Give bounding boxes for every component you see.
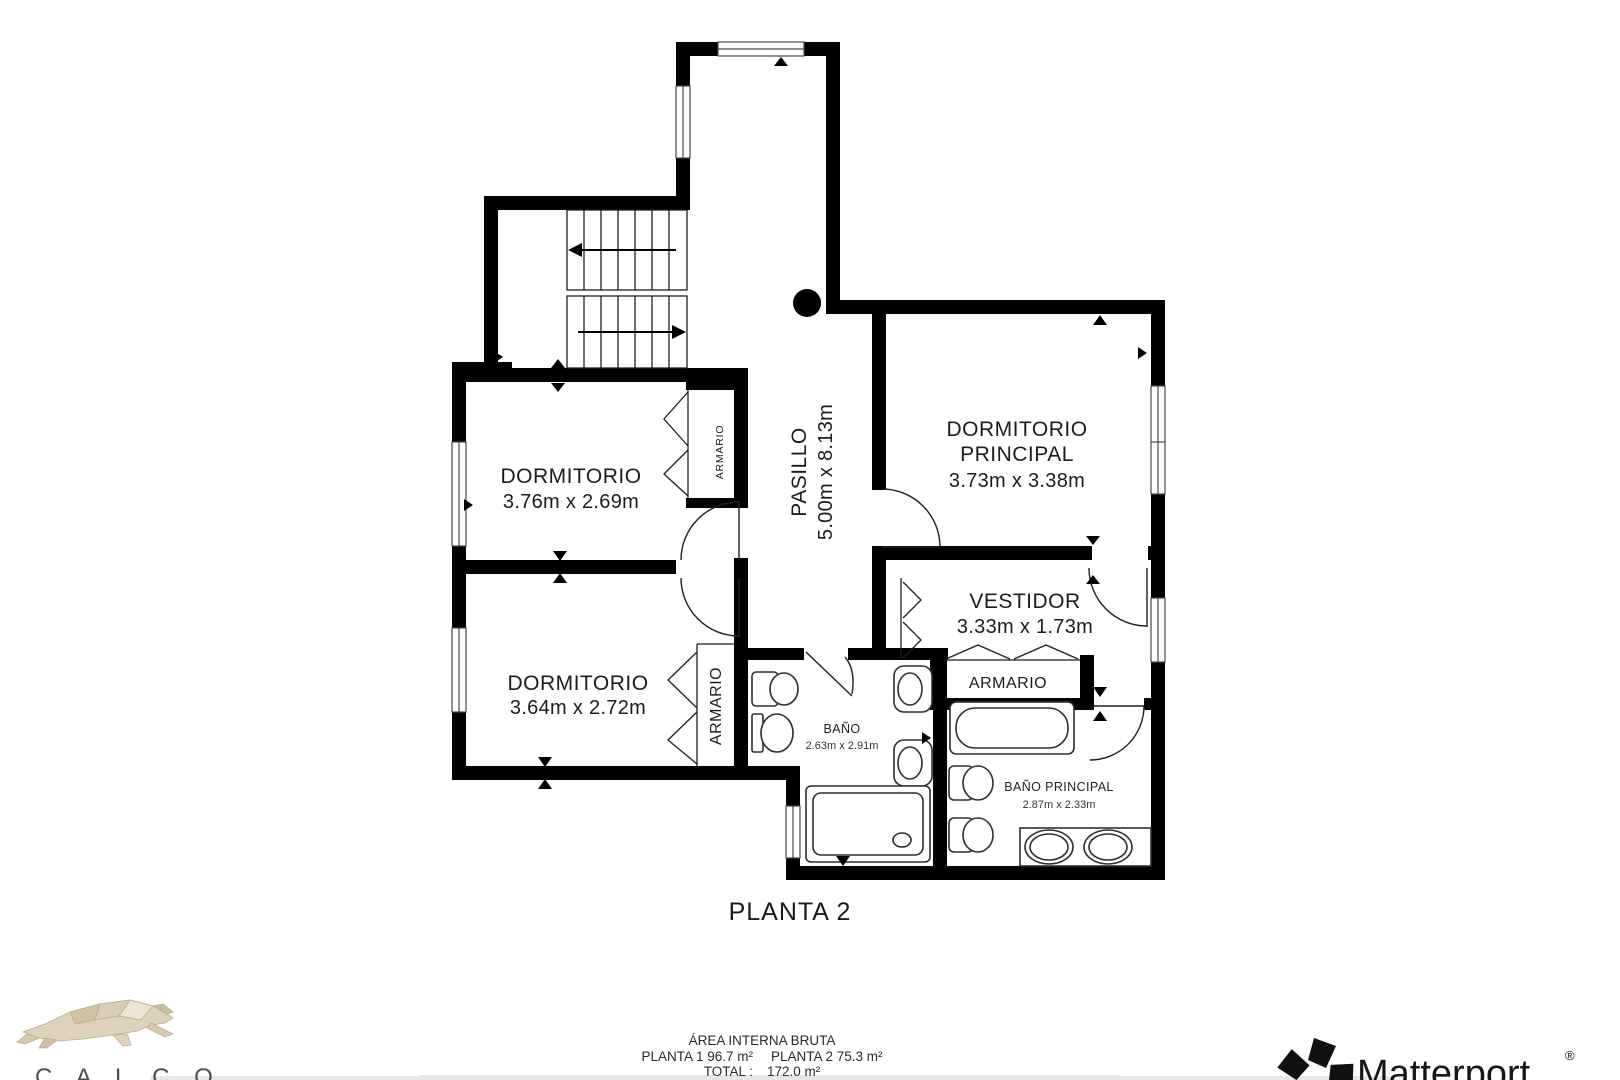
bathtub — [950, 702, 1074, 754]
master-bedroom-label-line2: PRINCIPAL — [960, 443, 1074, 466]
wall-dressing-top — [872, 546, 1092, 560]
door-master-bedroom — [882, 489, 940, 547]
window-corridor-top — [718, 42, 804, 56]
planta1-area: PLANTA 1 96.7 m² — [641, 1049, 753, 1064]
matterport-wordmark: Matterport — [1357, 1053, 1531, 1080]
toilet-bathroom-right — [894, 666, 932, 712]
wall-dressing-left — [872, 546, 886, 660]
window-dressing-right — [1151, 598, 1165, 662]
wall-closet2-right — [734, 660, 748, 766]
wall-masterbath-top-stub — [1144, 698, 1165, 710]
dressing-room-dims: 3.33m x 1.73m — [957, 616, 1093, 638]
bathroom-dims: 2.63m x 2.91m — [806, 740, 879, 752]
wall-hall-left-lower — [734, 558, 748, 660]
closet3-label: ARMARIO — [969, 675, 1047, 692]
window-corridor-left — [676, 86, 690, 158]
hallway-dims: 5.00m x 8.13m — [815, 404, 837, 540]
area-summary-plantas: PLANTA 1 96.7 m²PLANTA 2 75.3 m² — [641, 1049, 883, 1064]
wall-stairs-left — [484, 196, 498, 376]
bedroom1-dims: 3.76m x 2.69m — [503, 491, 639, 513]
greyhound-icon — [17, 1000, 173, 1048]
master-bathroom-dims: 2.87m x 2.33m — [1023, 799, 1096, 811]
staircase — [567, 210, 687, 368]
area-summary: ÁREA INTERNA BRUTA PLANTA 1 96.7 m²PLANT… — [641, 1033, 883, 1079]
wall-dressing-top-stub — [1148, 546, 1165, 560]
bottom-smudge — [150, 1075, 1390, 1080]
calco-logo: C A L C O — [17, 1000, 222, 1080]
wall-master-top — [826, 300, 1165, 314]
calco-letters: C A L C O — [35, 1064, 222, 1080]
floor-plan-canvas: DORMITORIO 3.76m x 2.69m DORMITORIO 3.64… — [0, 0, 1620, 1080]
shower-tray — [806, 786, 930, 862]
bidet-masterbath — [949, 818, 993, 852]
wall-stairs-top — [484, 196, 690, 210]
window-master-right — [1151, 386, 1165, 494]
bidet-bathroom-right — [894, 740, 932, 786]
closet3-bifold-doors — [944, 645, 1080, 660]
dressing-room-label: VESTIDOR — [969, 590, 1080, 613]
dressing-rail-symbol — [901, 578, 921, 658]
door-bedroom1 — [681, 502, 739, 560]
closet1-label: ARMARIO — [714, 425, 726, 480]
wall-bath-top-left — [748, 648, 804, 660]
window-bedroom2-left — [452, 628, 466, 712]
double-sink-counter — [1020, 828, 1151, 866]
stairs-direction-down-arrow — [578, 325, 686, 339]
matterport-logo: Matterport ® — [1275, 1038, 1575, 1080]
window-shower-left — [786, 806, 800, 858]
master-bathroom-label: BAÑO PRINCIPAL — [1004, 780, 1114, 794]
area-summary-title: ÁREA INTERNA BRUTA — [689, 1033, 836, 1048]
plan-title: PLANTA 2 — [729, 898, 852, 926]
column-dot — [793, 289, 821, 317]
wall-master-left-upper — [872, 314, 886, 490]
planta2-area: PLANTA 2 75.3 m² — [771, 1049, 883, 1064]
wall-corridor-right — [826, 42, 840, 314]
bedroom1-label: DORMITORIO — [500, 465, 641, 488]
closet2-label: ARMARIO — [708, 667, 725, 745]
master-bedroom-dims: 3.73m x 3.38m — [949, 470, 1085, 492]
door-bedroom2 — [681, 578, 739, 638]
wall-bedroom-divider — [452, 560, 676, 574]
wall-bedroom2-bottom — [452, 766, 800, 780]
bathroom-label: BAÑO — [823, 722, 860, 736]
wall-exterior-bottom — [786, 866, 1165, 880]
matterport-registered-mark: ® — [1565, 1048, 1575, 1063]
door-dressing-room — [1089, 568, 1147, 627]
door-bathroom — [806, 652, 853, 696]
master-bedroom-label-line1: DORMITORIO — [946, 418, 1087, 441]
toilet-masterbath — [949, 766, 993, 800]
bidet-bathroom — [752, 672, 798, 706]
wall-bedroom1-top — [452, 368, 748, 382]
closet1-bifold-doors — [664, 390, 688, 498]
window-bedroom1-left — [452, 442, 466, 546]
hallway-label: PASILLO — [788, 427, 811, 517]
bedroom2-label: DORMITORIO — [507, 672, 648, 695]
bedroom2-dims: 3.64m x 2.72m — [510, 697, 646, 719]
toilet-bathroom-left — [752, 714, 793, 752]
wall-closet1-top — [686, 382, 748, 390]
matterport-icon — [1275, 1038, 1360, 1080]
